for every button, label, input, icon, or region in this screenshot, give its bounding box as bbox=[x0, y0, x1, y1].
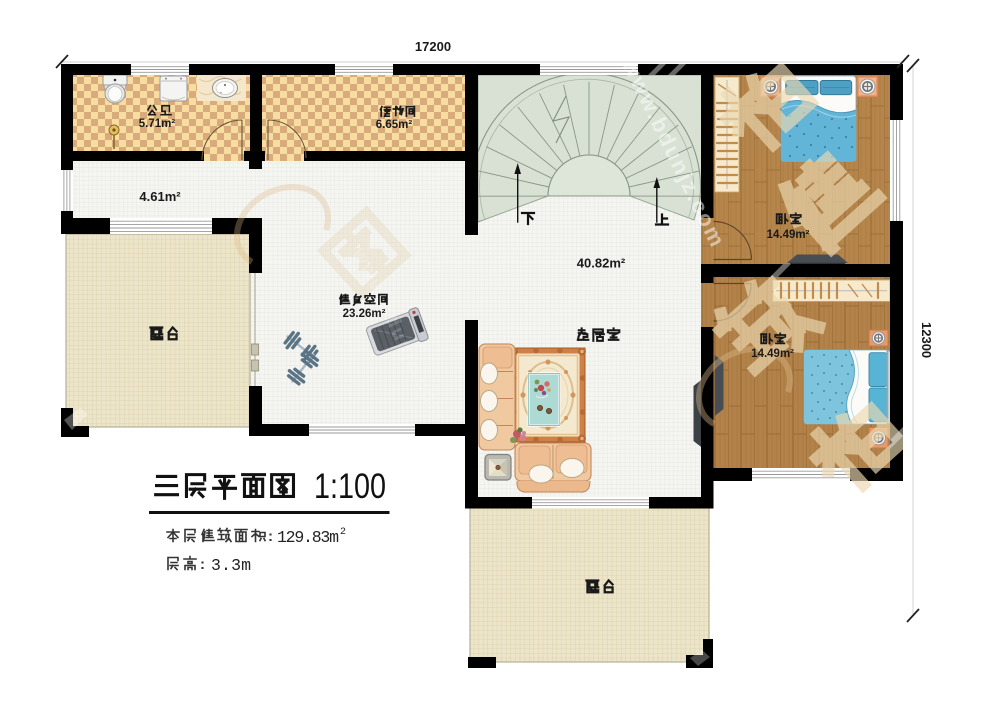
svg-text::: : bbox=[268, 528, 273, 545]
svg-text::: : bbox=[200, 556, 205, 573]
svg-text:6.65m²: 6.65m² bbox=[376, 119, 413, 131]
svg-text:5.71m²: 5.71m² bbox=[139, 118, 176, 130]
svg-text:1:100: 1:100 bbox=[314, 467, 386, 506]
svg-text:40.82m²: 40.82m² bbox=[577, 256, 626, 271]
svg-text:14.49m²: 14.49m² bbox=[767, 229, 810, 241]
svg-text:129.83m: 129.83m bbox=[277, 528, 339, 547]
svg-text:12300: 12300 bbox=[919, 322, 934, 358]
svg-text:2: 2 bbox=[340, 527, 346, 538]
svg-text:14.49m²: 14.49m² bbox=[751, 348, 794, 360]
svg-text:17200: 17200 bbox=[415, 39, 451, 54]
svg-text:4.61m²: 4.61m² bbox=[139, 189, 181, 204]
svg-text:23.26m²: 23.26m² bbox=[343, 308, 386, 320]
svg-text:3.3m: 3.3m bbox=[211, 556, 251, 575]
